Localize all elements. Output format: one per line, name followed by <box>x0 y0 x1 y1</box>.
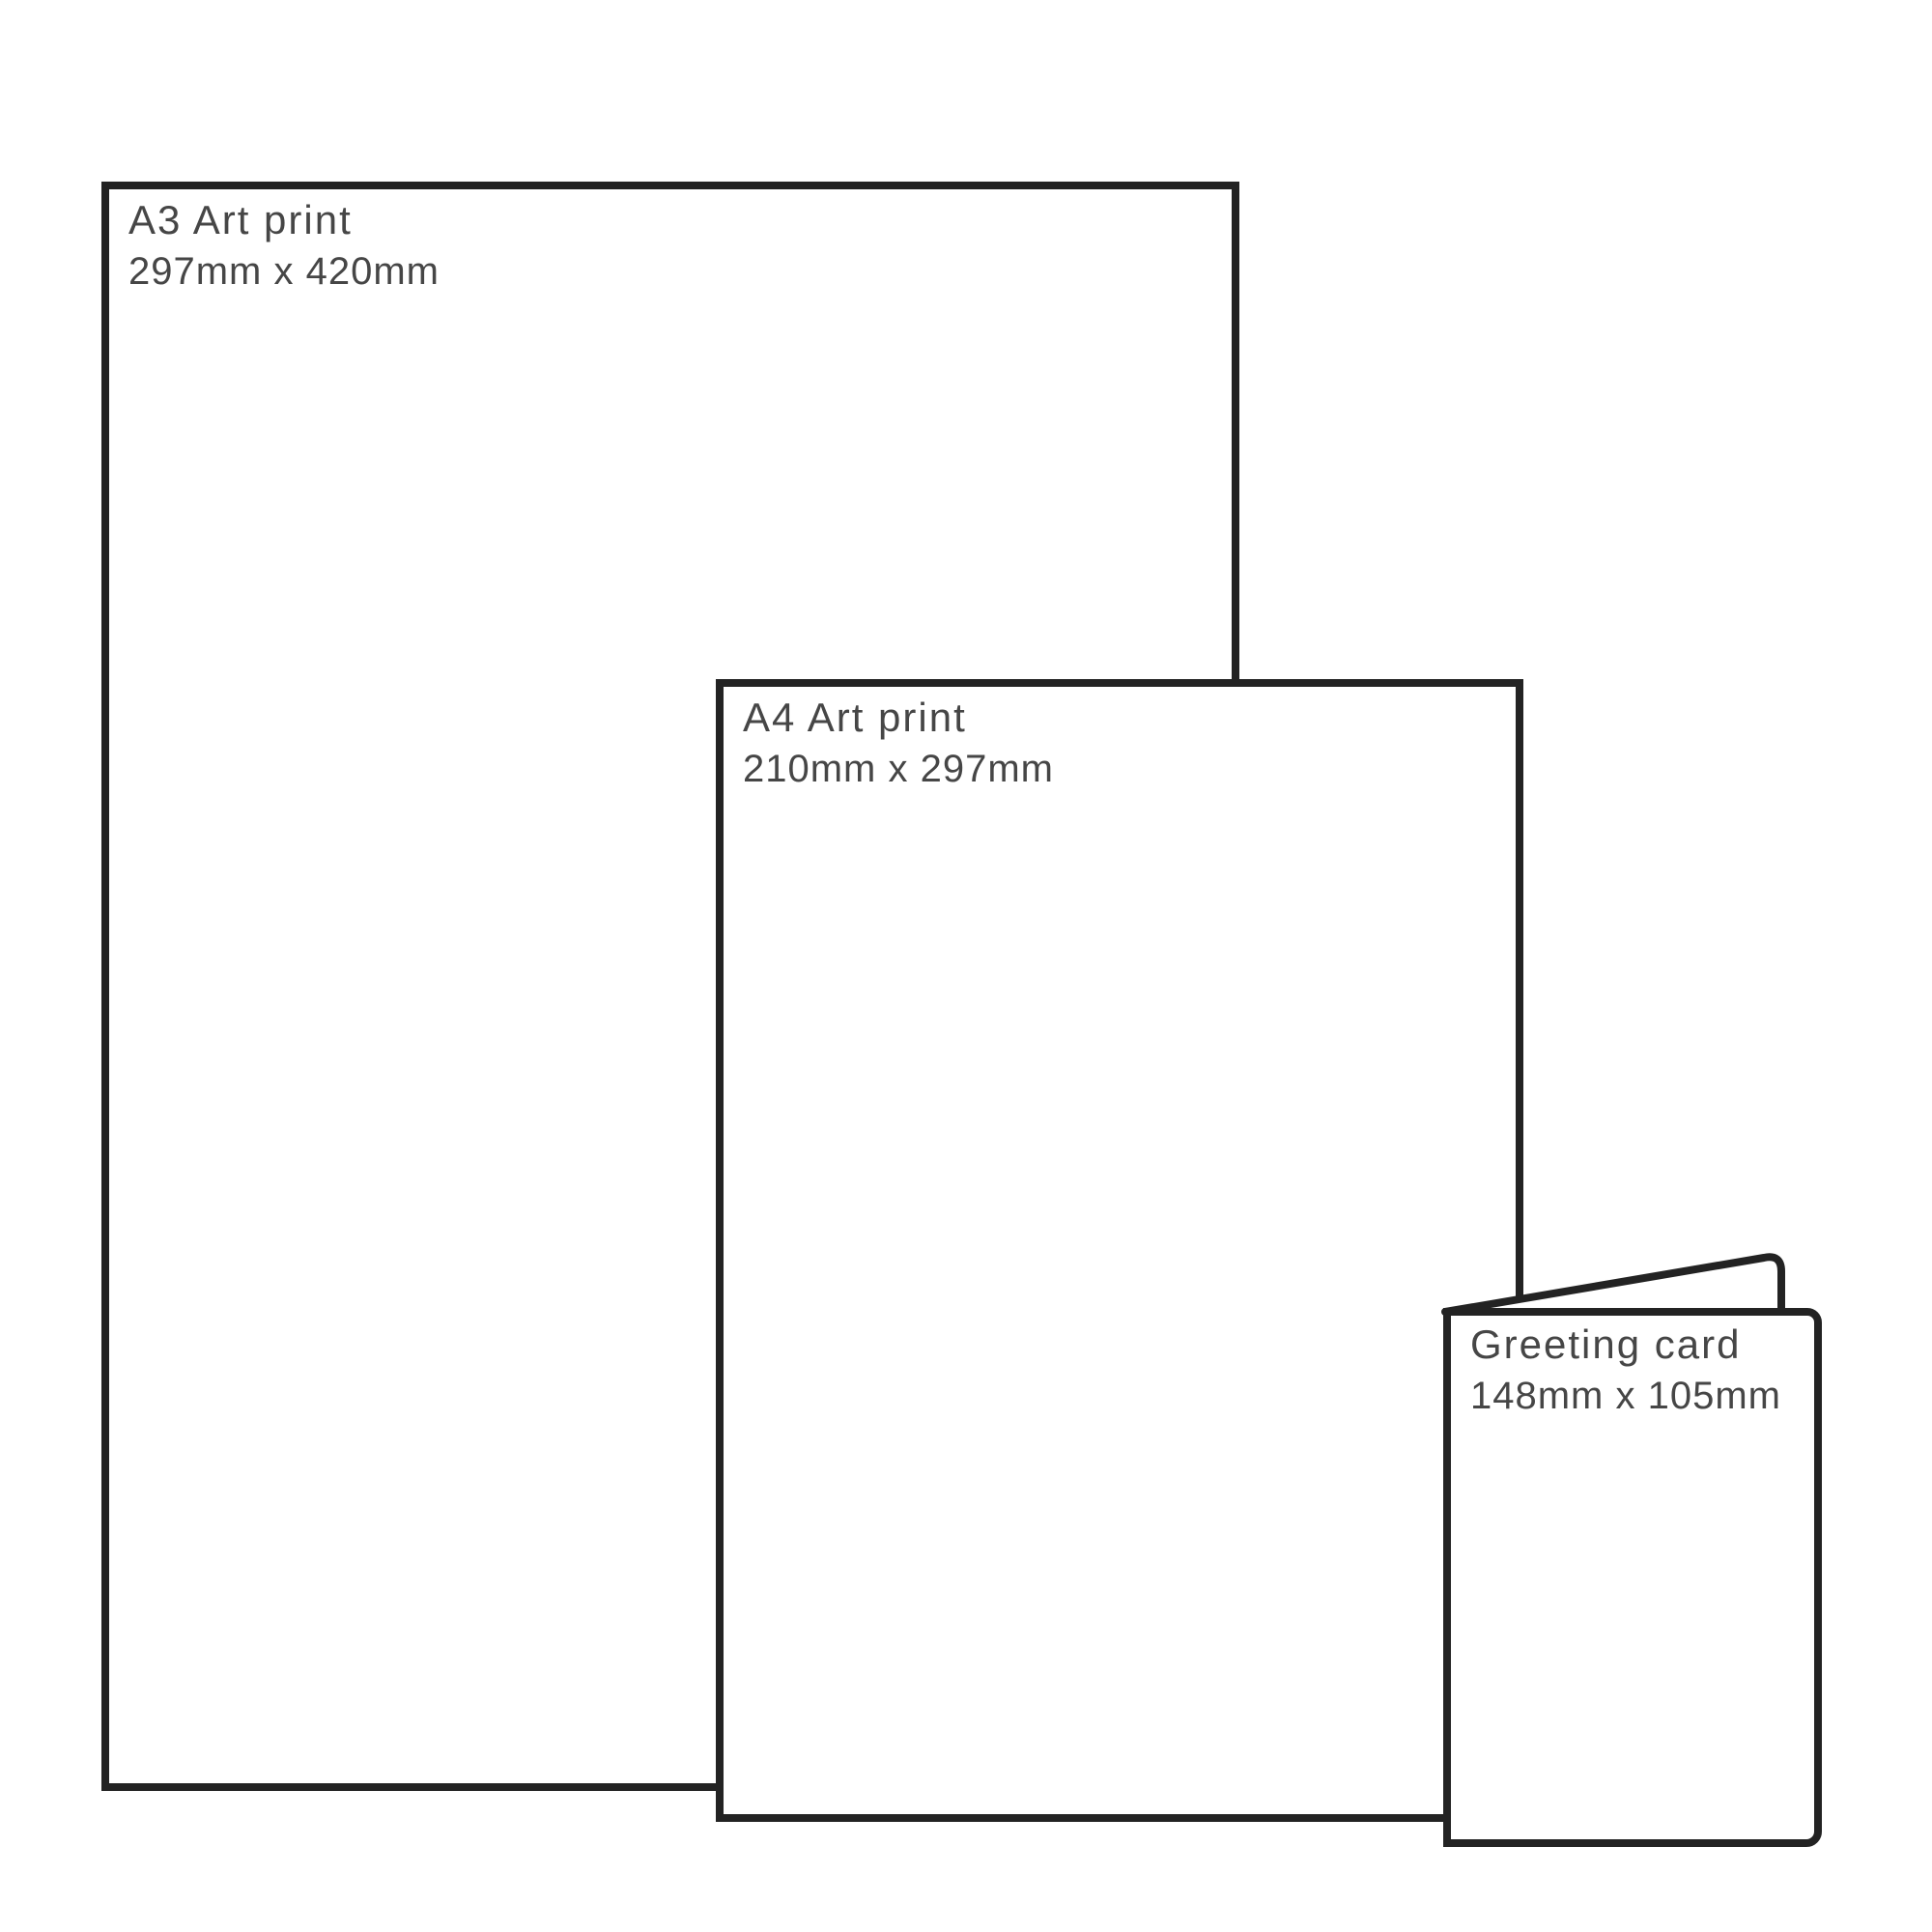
greeting-card-dimensions: 148mm x 105mm <box>1470 1372 1814 1420</box>
a4-print-title: A4 Art print <box>743 691 1516 745</box>
greeting-card-outline: Greeting card 148mm x 105mm <box>1443 1308 1822 1847</box>
a4-print-outline: A4 Art print 210mm x 297mm <box>716 679 1523 1822</box>
a4-print-dimensions: 210mm x 297mm <box>743 745 1516 793</box>
a3-print-dimensions: 297mm x 420mm <box>128 247 1232 296</box>
a3-print-title: A3 Art print <box>128 193 1232 247</box>
greeting-card-title: Greeting card <box>1470 1318 1814 1372</box>
a3-print-label: A3 Art print 297mm x 420mm <box>109 189 1232 296</box>
a4-print-label: A4 Art print 210mm x 297mm <box>724 687 1516 793</box>
greeting-card-label: Greeting card 148mm x 105mm <box>1451 1316 1814 1420</box>
size-comparison-diagram: A3 Art print 297mm x 420mm A4 Art print … <box>0 0 1932 1932</box>
